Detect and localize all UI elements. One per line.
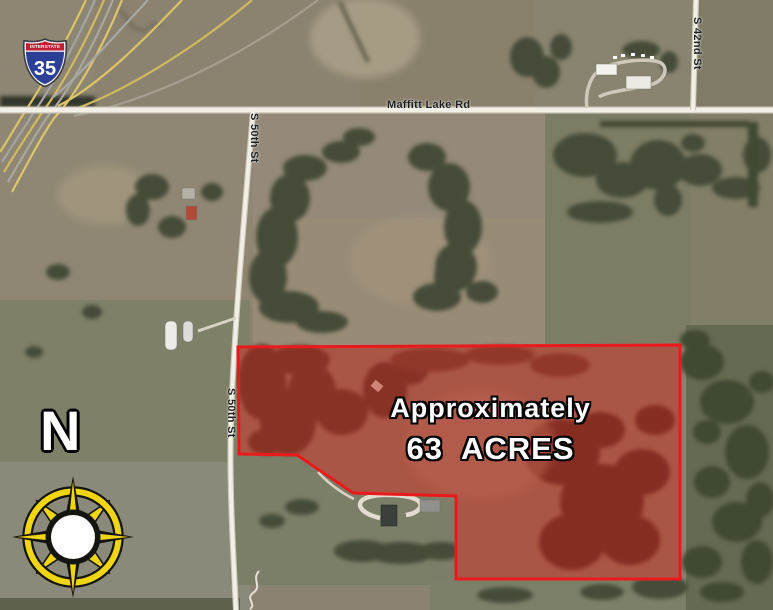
road-label-s-42nd-st: S 42nd St [691, 17, 703, 70]
parcel-acreage-line2: 63 ACRES [338, 429, 643, 469]
parcel-acreage-label: Approximately 63 ACRES [338, 392, 643, 469]
road-label-maffitt-lake-rd: Maffitt Lake Rd [387, 99, 470, 111]
road-label-s-50th-st-upper: S 50th St [248, 113, 260, 163]
parcel-acreage-line1: Approximately [338, 392, 643, 425]
aerial-map: Maffitt Lake Rd S 50th St S 50th St S 42… [0, 0, 773, 610]
shield-route-number: 35 [34, 58, 56, 80]
interstate-35-shield-icon: INTERSTATE 35 [22, 36, 68, 88]
north-label: N [40, 398, 80, 463]
shield-banner-text: INTERSTATE [30, 44, 60, 49]
compass-rose-icon [6, 470, 140, 604]
road-label-s-50th-st-lower: S 50th St [225, 388, 237, 438]
